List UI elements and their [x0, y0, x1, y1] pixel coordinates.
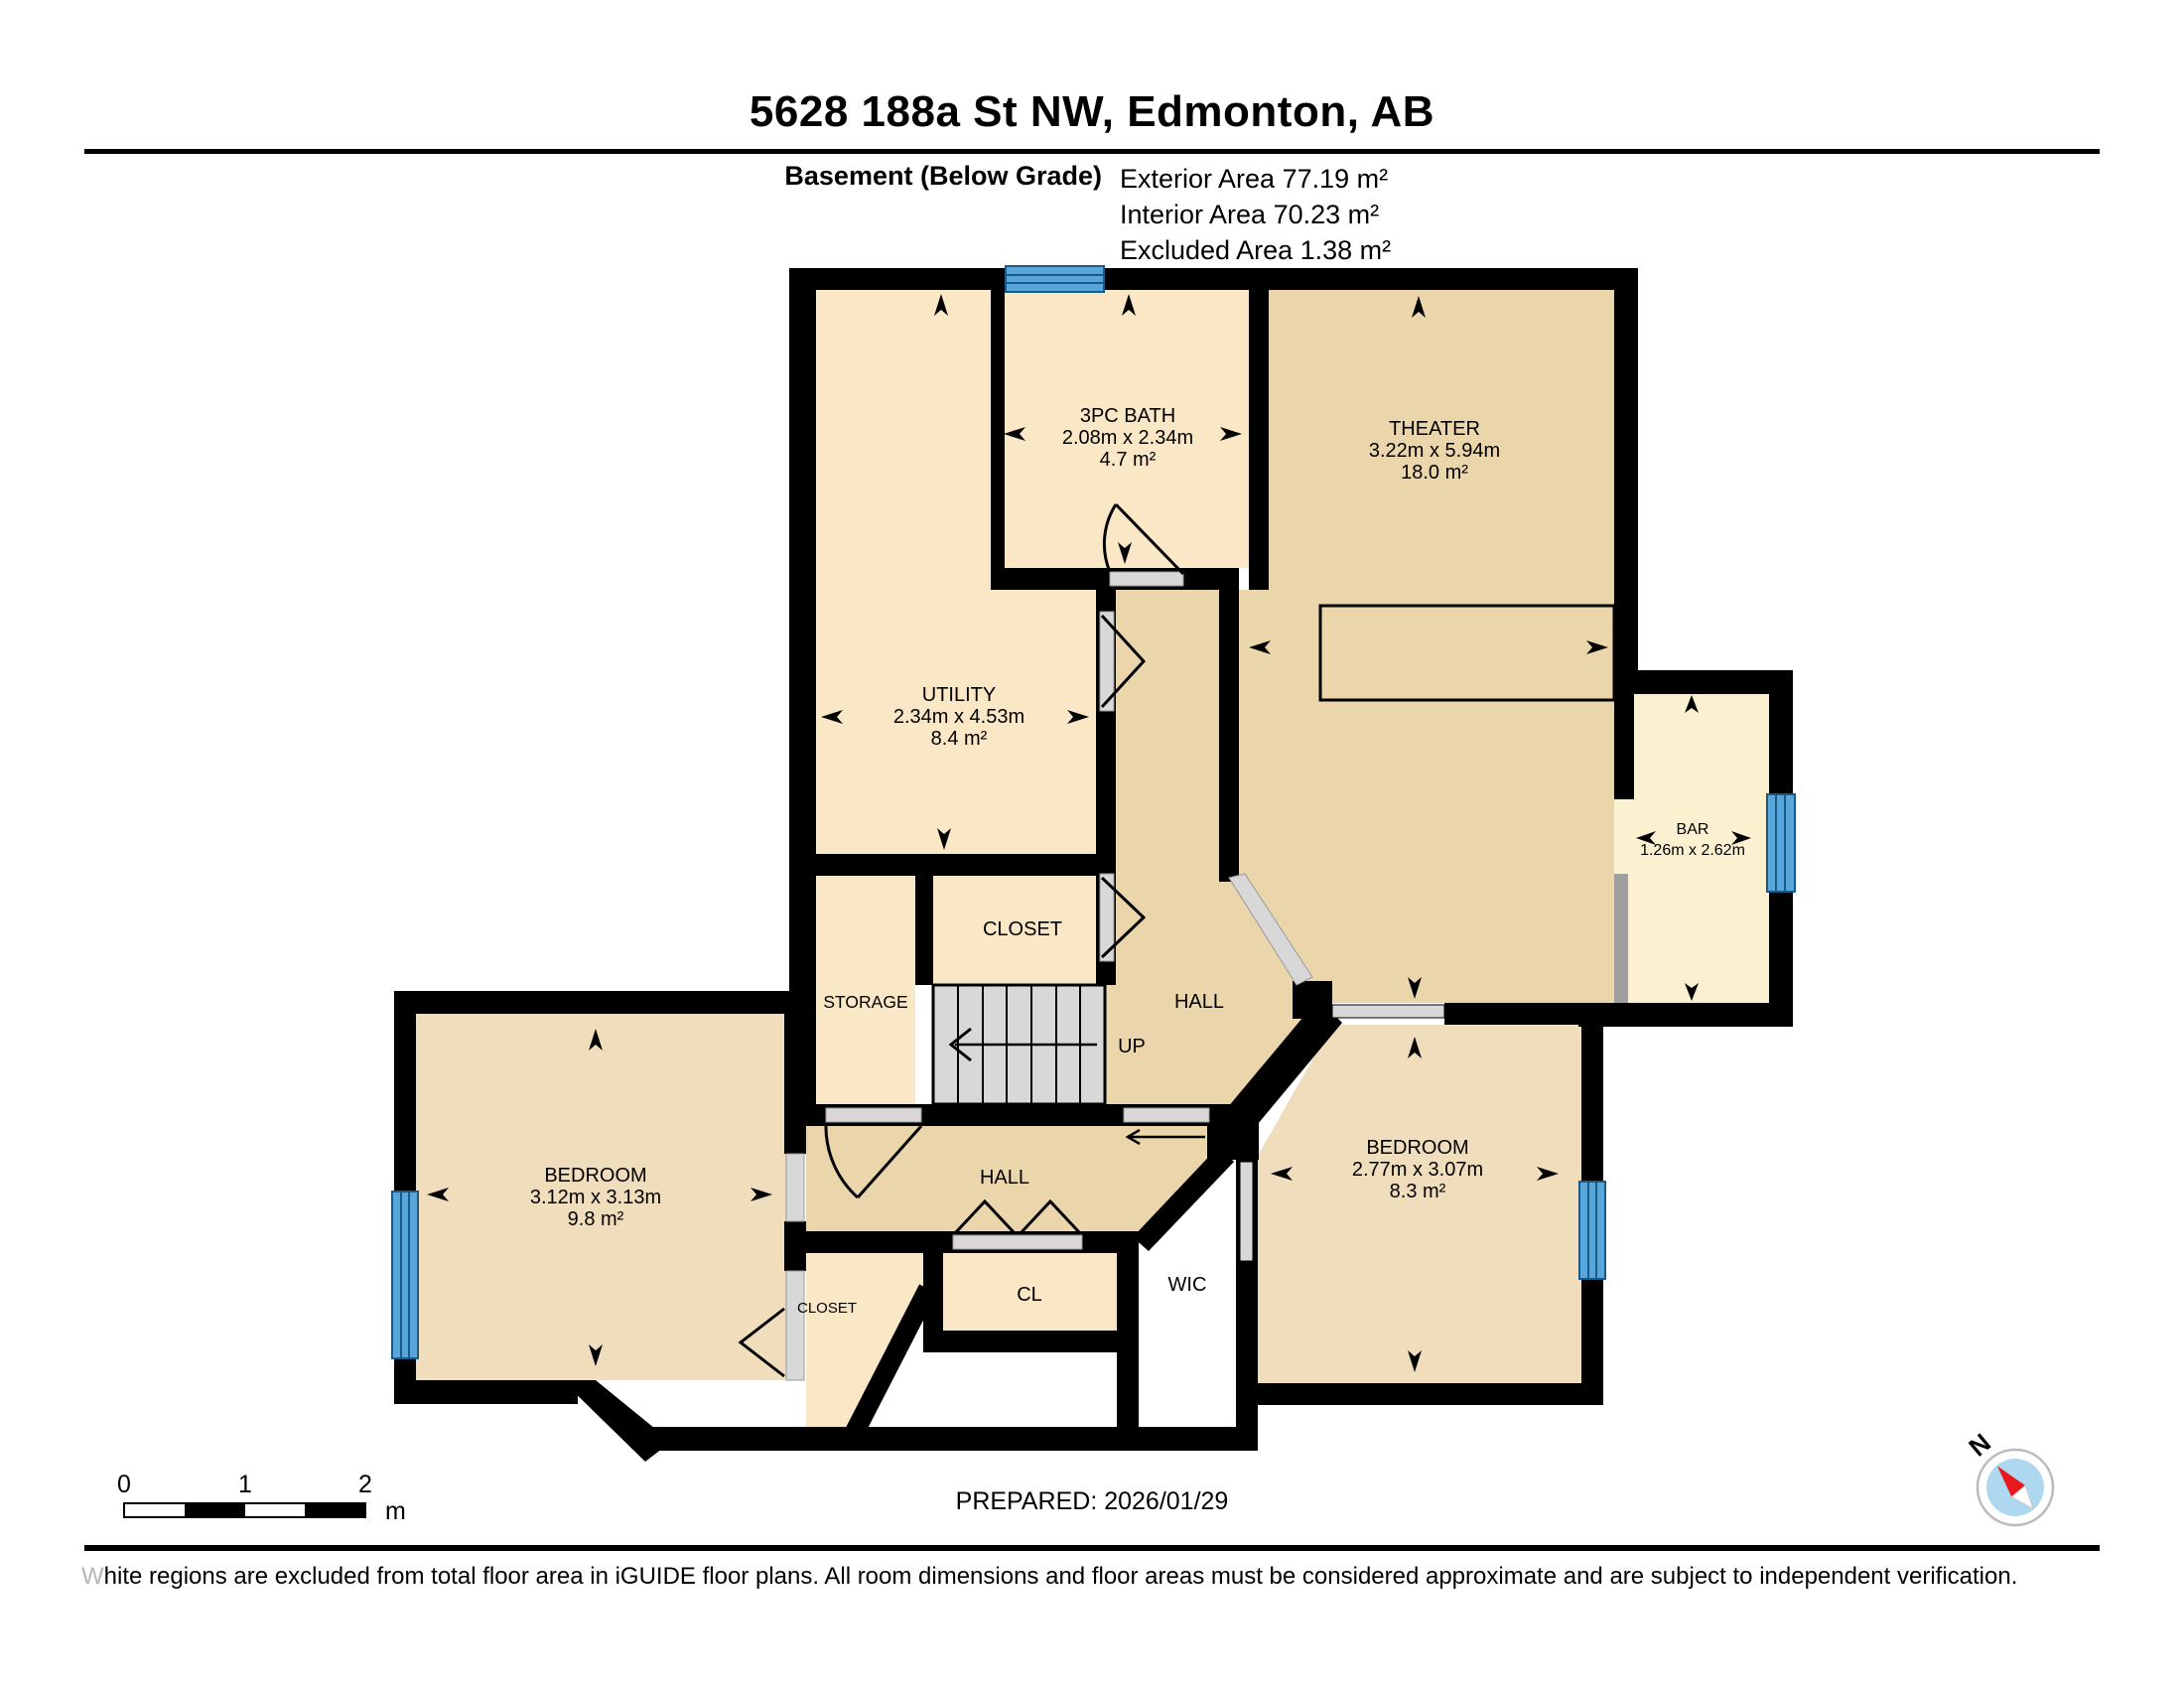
- storage-door-opening: [826, 1108, 921, 1122]
- theater-label: THEATER: [1389, 418, 1480, 440]
- wall-bath-left: [991, 290, 1005, 568]
- closet-lower-label: CLOSET: [797, 1300, 857, 1317]
- bath-area: 4.7 m²: [1100, 449, 1157, 471]
- bedroom-left-area: 9.8 m²: [568, 1208, 624, 1230]
- bath-dims: 2.08m x 2.34m: [1062, 427, 1193, 449]
- wall-bar-stub: [1614, 690, 1634, 799]
- bedroom-right-area: 8.3 m²: [1390, 1181, 1446, 1202]
- closet-upper-label: CLOSET: [983, 918, 1062, 940]
- wall-bedroom-right-top: [1444, 1003, 1603, 1025]
- cl-bifold-opening: [953, 1235, 1082, 1249]
- prepared-date: PREPARED: 2026/01/29: [0, 1487, 2184, 1516]
- wall-bedroom-left-east-a: [784, 1014, 806, 1154]
- cl-label: CL: [1017, 1284, 1042, 1306]
- wall-bedroom-right-bottom: [1236, 1383, 1603, 1405]
- bedroom-left-dims: 3.12m x 3.13m: [530, 1187, 661, 1208]
- floor-plan-svg: 3PC BATH 2.08m x 2.34m 4.7 m² THEATER 3.…: [0, 0, 2184, 1688]
- wic-label: WIC: [1168, 1274, 1207, 1296]
- wall-theater-right: [1614, 268, 1638, 690]
- bath-label: 3PC BATH: [1080, 405, 1175, 427]
- wall-utility-bottom: [816, 854, 1096, 876]
- window-bedroom-left: [392, 1192, 418, 1358]
- window-bedroom-right: [1579, 1182, 1605, 1279]
- wall-bar-bottom: [1578, 1003, 1793, 1027]
- footer-rule: [84, 1545, 2100, 1551]
- staircase: [933, 985, 1105, 1104]
- bedroom-left-door-opening: [786, 1154, 804, 1221]
- wall-corridor-right: [1219, 568, 1239, 882]
- floor-plan-page: 5628 188a St NW, Edmonton, AB Basement (…: [0, 0, 2184, 1688]
- up-label: UP: [1118, 1036, 1146, 1057]
- bedroom-left-closet-opening: [786, 1271, 804, 1380]
- window-bar-right: [1767, 794, 1795, 892]
- wall-diagonal-exterior: [562, 1380, 671, 1462]
- storage-label: STORAGE: [823, 992, 907, 1012]
- bedroom-right-sliding-door: [1332, 1005, 1444, 1018]
- utility-dims: 2.34m x 4.53m: [893, 706, 1024, 728]
- bedroom-right-dims: 2.77m x 3.07m: [1352, 1159, 1483, 1181]
- wall-bath-right: [1249, 290, 1269, 590]
- bedroom-right-floor: [1258, 1025, 1581, 1383]
- wall-cl-bottom: [923, 1331, 1139, 1352]
- hall-door-opening: [1124, 1108, 1209, 1122]
- hall-upper-label: HALL: [1174, 991, 1224, 1013]
- theater-area: 18.0 m²: [1401, 462, 1468, 484]
- storage-floor: [816, 876, 915, 1104]
- wall-bedroom-left-bottom: [394, 1380, 578, 1404]
- bedroom-left-label: BEDROOM: [544, 1165, 646, 1187]
- bar-dims: 1.26m x 2.62m: [1640, 842, 1745, 859]
- window-bath-top: [1006, 266, 1104, 292]
- bar-label: BAR: [1677, 821, 1709, 838]
- bar-counter: [1614, 874, 1628, 1003]
- wall-storage-right: [915, 876, 933, 985]
- wic-sliding-door: [1240, 1162, 1253, 1261]
- theater-dims: 3.22m x 5.94m: [1369, 440, 1500, 462]
- utility-area: 8.4 m²: [931, 728, 988, 750]
- wall-top: [789, 268, 1638, 290]
- bedroom-right-label: BEDROOM: [1366, 1137, 1468, 1159]
- disclaimer-text: White regions are excluded from total fl…: [81, 1563, 2116, 1591]
- wall-middle-bottom: [640, 1427, 1258, 1451]
- hall-lower-label: HALL: [980, 1167, 1029, 1189]
- wall-bedroom-left-east-b: [784, 1221, 806, 1271]
- wall-bedroom-left-top: [394, 991, 806, 1014]
- bath-door-opening: [1110, 572, 1183, 586]
- utility-label: UTILITY: [922, 684, 996, 706]
- wall-bar-top: [1614, 670, 1793, 694]
